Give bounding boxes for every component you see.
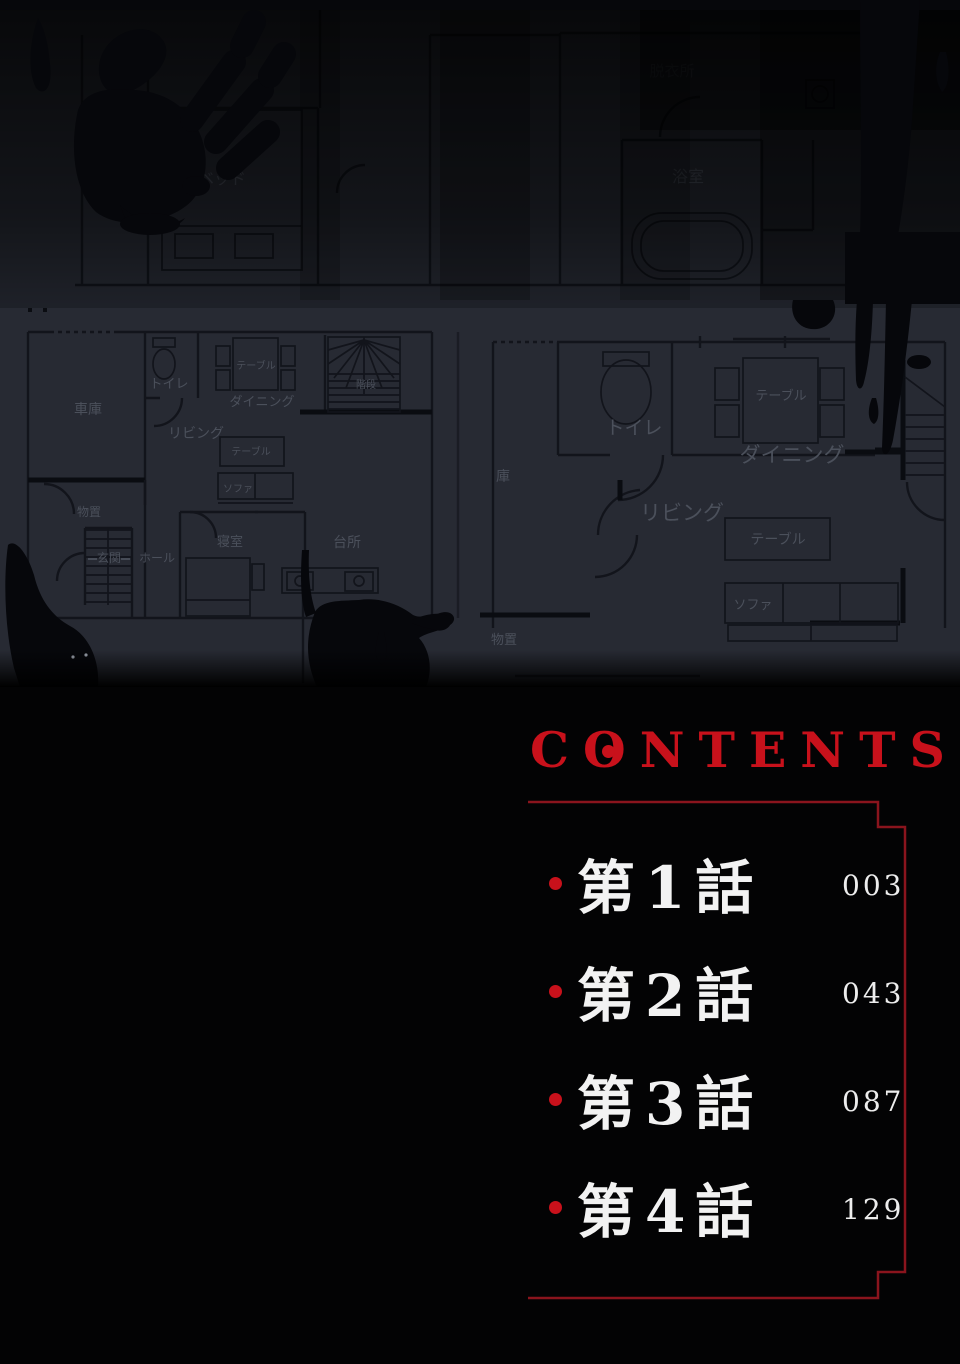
contents-title: CONTENTS (530, 721, 959, 779)
room-label: ダイニング (229, 395, 294, 410)
room-label: ホール (139, 551, 175, 565)
chapter-label: 第3話 (577, 1057, 812, 1141)
title-letter-o-bullseye: O (583, 721, 640, 779)
stairs-icon (85, 528, 132, 605)
chapter-label: 第1話 (577, 841, 812, 925)
room-label: トイレ (149, 377, 188, 392)
room-label: ダイニング (740, 443, 845, 467)
contents-section: CONTENTS 第1話 003 第2話 043 第3話 087 第4話 129 (0, 687, 960, 1364)
chapter-bullet (549, 1093, 562, 1106)
chapter-label: 第2話 (577, 949, 812, 1033)
room-label: 玄関 (97, 550, 121, 565)
room-label: テーブル (750, 531, 805, 548)
room-label: 寝室 (217, 534, 243, 550)
toc-row-chapter-4: 第4話 129 (549, 1171, 904, 1243)
room-label: 物置 (77, 505, 101, 519)
toc: 第1話 003 第2話 043 第3話 087 第4話 129 (549, 847, 904, 1243)
page-number: 003 (842, 869, 904, 902)
floorplan-background: バルコベッド脱衣所浴室 (0, 0, 960, 687)
room-label: 庫 (496, 468, 510, 485)
toc-row-chapter-3: 第3話 087 (549, 1063, 904, 1135)
room-label: テーブル (236, 359, 275, 372)
room-label: 物置 (491, 633, 517, 648)
manga-contents-page: { "colors": { "accent_red": "#c8111b", "… (0, 0, 960, 1364)
room-label: トイレ (605, 417, 662, 439)
chapter-bullet (549, 1201, 562, 1214)
chapter-bullet (549, 985, 562, 998)
chapter-bullet (549, 877, 562, 890)
title-letters: NTENTS (640, 721, 959, 779)
room-label: 台所 (333, 535, 361, 551)
page-number: 129 (842, 1193, 904, 1226)
chapter-label: 第4話 (577, 1165, 812, 1249)
title-letter: C (530, 721, 583, 779)
room-label: リビング (168, 426, 224, 442)
room-label: 階段 (356, 378, 376, 391)
room-label: ソファ (733, 598, 772, 613)
room-label: 車庫 (74, 401, 102, 418)
toc-row-chapter-1: 第1話 003 (549, 847, 904, 919)
floorplan-art: バルコベッド脱衣所浴室 (0, 0, 960, 687)
room-label: リビング (640, 501, 724, 525)
page-number: 087 (842, 1085, 904, 1118)
toc-row-chapter-2: 第2話 043 (549, 955, 904, 1027)
room-label: ソファ (223, 484, 253, 495)
room-label: テーブル (755, 388, 806, 404)
room-label: テーブル (231, 445, 270, 458)
page-number: 043 (842, 977, 904, 1010)
